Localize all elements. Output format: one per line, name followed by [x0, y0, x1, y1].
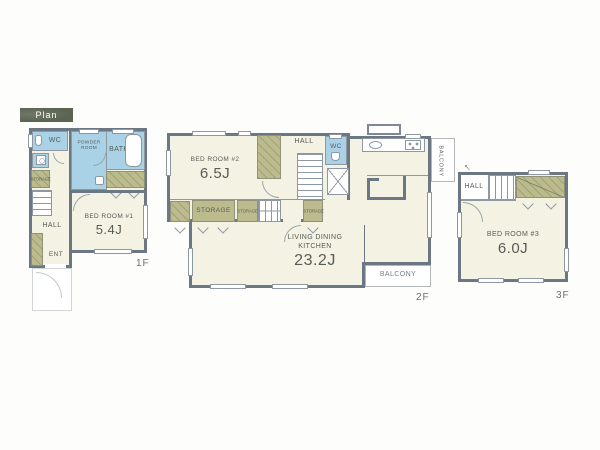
1f-wc-label: WC: [40, 137, 70, 145]
window: [518, 278, 544, 283]
wall-segment: [367, 175, 428, 176]
1f-bath-closet: [106, 171, 145, 188]
window: [457, 212, 462, 238]
window: [28, 134, 33, 148]
window: [192, 131, 226, 136]
window: [94, 249, 132, 254]
window: [405, 134, 421, 139]
toilet-icon: [331, 152, 340, 161]
2f-hall-label: HALL: [287, 138, 321, 146]
2f-bedroom-closet: [257, 135, 281, 179]
floor-plan-canvas: Plan WC STORAGE POWDER ROOM BATH HALL EN…: [0, 0, 600, 450]
1f-storage-label: STORAGE: [30, 177, 49, 181]
3f-bedroom-label: BED ROOM #3: [468, 231, 558, 239]
2f-storage-small-b-label: STORAGE: [303, 209, 322, 213]
2f-storage-large-label: STORAGE: [192, 207, 235, 214]
2f-left-closet: [170, 201, 190, 222]
folding-door-mark: [174, 222, 185, 233]
window: [112, 129, 134, 134]
3f-hall-label: HALL: [459, 183, 489, 191]
1f-bedroom-label: BED ROOM #1: [73, 213, 145, 220]
kitchen-sink-icon: [369, 141, 382, 149]
1f-shoe-cabinet: [31, 233, 43, 266]
2f-side-balcony-label: BALCONY: [438, 145, 443, 176]
1f-hall-label: HALL: [37, 222, 67, 230]
2f-storage-small-a-label: STORAGE: [237, 209, 256, 213]
floor-label-2f: 2F: [416, 292, 430, 303]
3f-stairs: [488, 175, 516, 200]
2f-stairs-upper: [297, 153, 323, 200]
window: [564, 248, 569, 272]
1f-entrance-label: ENT: [43, 251, 69, 258]
window: [79, 129, 99, 134]
stove-icon: [405, 140, 421, 150]
plan-badge: Plan: [20, 108, 73, 122]
wall-segment: [367, 197, 406, 200]
floor-label-1f: 1F: [136, 258, 150, 269]
bay-window: [367, 124, 401, 135]
2f-bedroom-size: 6.5J: [173, 165, 257, 182]
1f-stairs: [32, 190, 52, 216]
3f-closet: [516, 176, 565, 198]
sink-icon: [95, 176, 104, 185]
window: [210, 284, 246, 289]
window: [143, 205, 148, 239]
2f-wc-label: WC: [321, 143, 351, 150]
window: [329, 134, 342, 139]
washer-icon: [36, 155, 46, 165]
window: [478, 278, 504, 283]
2f-rear-balcony-label: BALCONY: [365, 271, 431, 279]
2f-ldk-size: 23.2J: [268, 252, 362, 270]
2f-bedroom-label: BED ROOM #2: [173, 156, 257, 163]
1f-powder-label: POWDER ROOM: [77, 140, 101, 151]
wall-segment: [461, 199, 516, 201]
2f-ldk-label-2: KITCHEN: [268, 243, 362, 251]
wall-segment: [69, 190, 147, 193]
window: [238, 131, 251, 136]
1f-bedroom-size: 5.4J: [73, 222, 145, 237]
window: [528, 170, 550, 175]
window: [272, 284, 308, 289]
bathtub-icon: [125, 134, 142, 167]
window: [427, 192, 432, 238]
3f-bedroom-size: 6.0J: [468, 240, 558, 257]
wall-segment: [403, 176, 406, 200]
void-shaft: [327, 168, 349, 195]
window: [188, 248, 193, 276]
2f-ldk-label-1: LIVING DINING: [268, 234, 362, 242]
window: [166, 150, 171, 176]
wall-segment: [367, 178, 379, 181]
toilet-icon: [35, 135, 42, 146]
patch: [345, 200, 353, 220]
2f-stairs-lower: [258, 200, 281, 222]
floor-label-3f: 3F: [556, 290, 570, 301]
